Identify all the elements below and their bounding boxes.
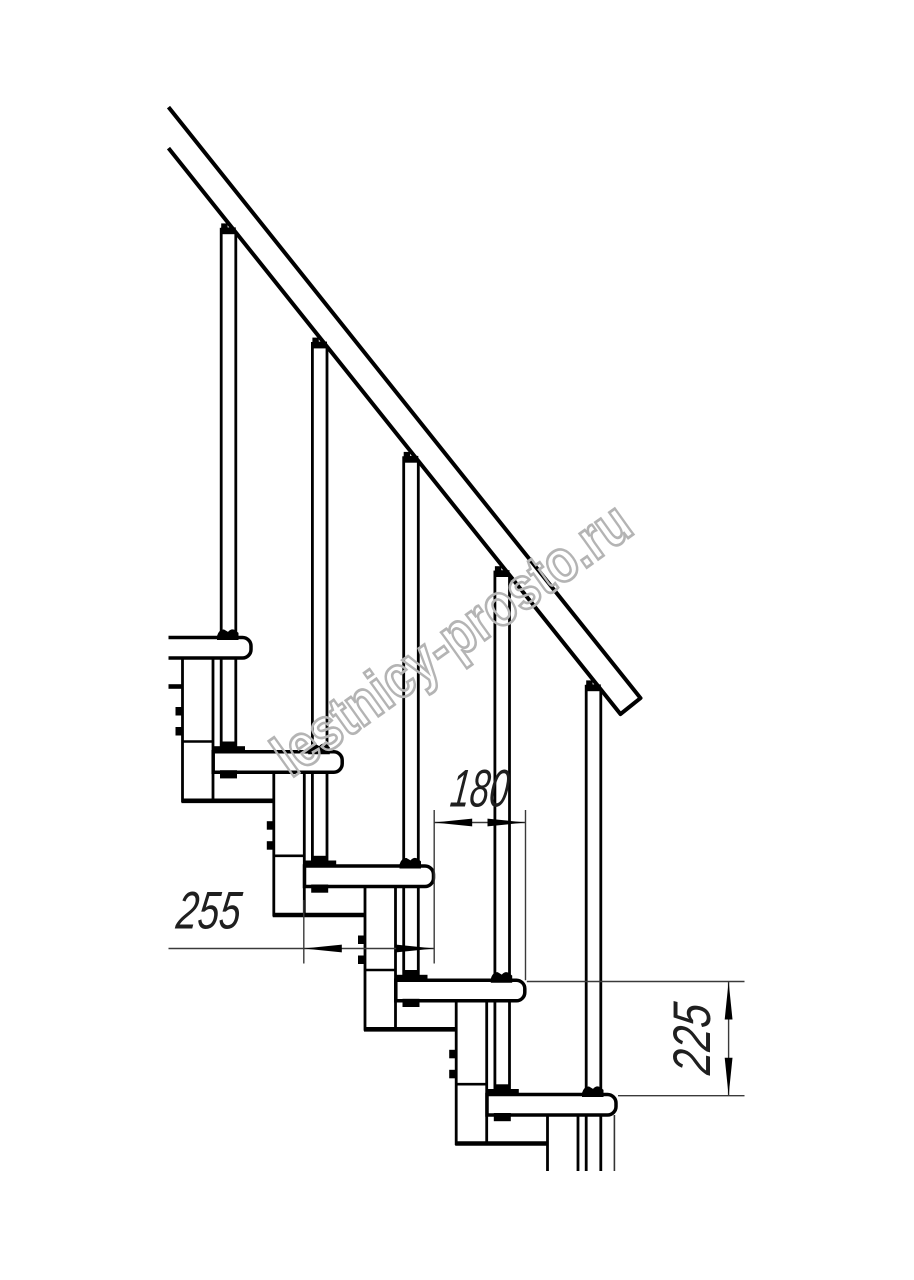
svg-text:225: 225 — [663, 999, 722, 1077]
svg-text:255: 255 — [173, 882, 245, 941]
svg-text:180: 180 — [448, 760, 513, 819]
